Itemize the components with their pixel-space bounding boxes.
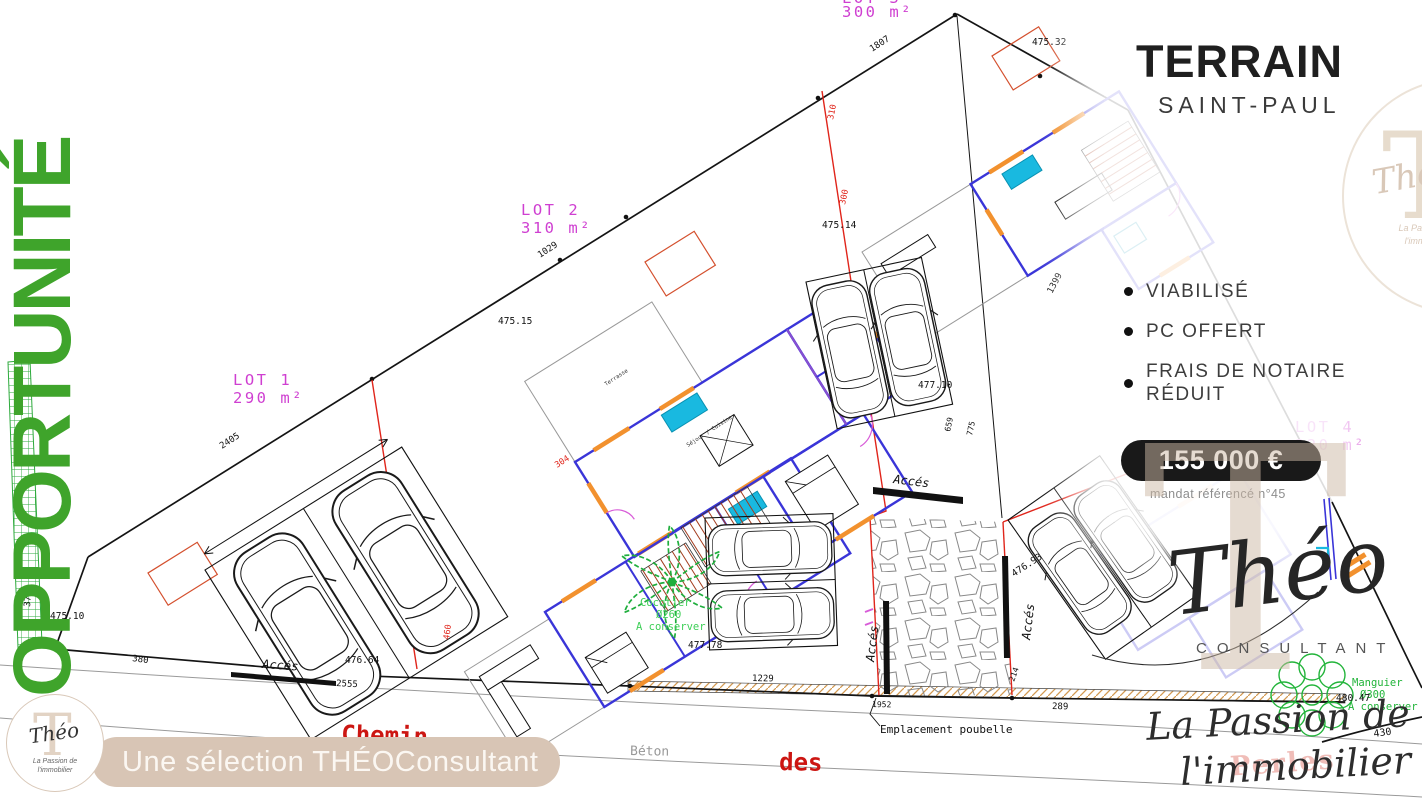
flyer-canvas: LOT 1 290 m² LOT 2 310 m² LOT 3 300 m² L…	[0, 0, 1422, 800]
opportunity-banner: OPPORTUNITÉ	[2, 138, 84, 697]
elevation-label: 475.15	[498, 316, 532, 327]
lot2-area: 310 m²	[521, 219, 592, 237]
footer-logo-tagline: La Passion del'immobilier	[7, 757, 103, 776]
lot1-name: LOT 1	[233, 371, 292, 389]
dimension-label: 1952	[872, 700, 892, 709]
dimension-label: 380	[132, 654, 149, 666]
dimension-label: 1807	[868, 34, 892, 54]
dimension-label: 289	[1052, 702, 1068, 712]
access-label: Accés	[892, 472, 931, 490]
bullet-icon	[1124, 287, 1133, 296]
elevation-label: 475.14	[822, 220, 857, 231]
parking-center	[705, 514, 838, 650]
elevation-label: 476.64	[345, 655, 380, 666]
dimension-label: 1029	[536, 240, 560, 260]
feature-label: VIABILISÉ	[1146, 280, 1249, 304]
elevation-label: 475.32	[1032, 37, 1066, 48]
dimension-label: 659	[943, 416, 955, 432]
footer-banner-label: Une sélection THÉOConsultant	[92, 746, 538, 779]
cocotier-note: A conserver	[636, 621, 706, 633]
elevation-label: 477.10	[918, 380, 953, 391]
room-label: Terrasse	[604, 368, 629, 387]
lot3-area: 300 m²	[842, 3, 913, 21]
room-labels: Terrasse Séjour / Cuisine	[604, 368, 734, 448]
road-label-beton: Béton	[630, 744, 669, 760]
elevation-label: 476.93	[1010, 552, 1045, 580]
cocotier-name: Cocotier	[640, 597, 691, 609]
dimension-label: 460	[442, 624, 454, 641]
dimension-label: 775	[965, 420, 977, 436]
page-subtitle: SAINT-PAUL	[1158, 92, 1341, 119]
stone-path	[870, 517, 1012, 696]
dimension-label: 1399	[1046, 272, 1065, 296]
page-title: TERRAIN	[1136, 36, 1343, 88]
elevation-label: 477.78	[688, 640, 723, 651]
dimension-label: 2555	[336, 679, 358, 690]
feature-label: PC OFFERT	[1146, 320, 1267, 344]
footer-logo: T Théo La Passion del'immobilier	[6, 694, 104, 792]
road-label-des: des	[779, 748, 823, 777]
bullet-icon	[1124, 379, 1133, 388]
dimension-label: 310	[826, 104, 839, 121]
brand-tagline-watermark: La Passion del'immobilier	[1382, 222, 1422, 247]
feature-item: VIABILISÉ	[1124, 280, 1346, 304]
feature-item: PC OFFERT	[1124, 320, 1346, 344]
parking-top	[801, 257, 957, 430]
footer-banner: Une sélection THÉOConsultant	[92, 737, 560, 787]
door-marks	[865, 609, 873, 625]
access-label: Accés	[261, 657, 299, 674]
dimension-label: 1229	[752, 674, 774, 684]
dimension-label: 304	[553, 454, 571, 471]
bullet-icon	[1124, 327, 1133, 336]
tree-labels: Cocotier Ø260 A conserver	[636, 597, 706, 633]
access-label: Accés	[1019, 603, 1037, 642]
dimension-label: 300	[838, 189, 851, 206]
lot1-area: 290 m²	[233, 389, 304, 407]
trash-label: Emplacement poubelle	[880, 723, 1012, 736]
lot2-name: LOT 2	[521, 201, 580, 219]
brand-subtitle: CONSULTANT	[1196, 640, 1395, 657]
cocotier-diameter: Ø260	[656, 609, 681, 621]
dimension-label: 2405	[218, 431, 242, 451]
